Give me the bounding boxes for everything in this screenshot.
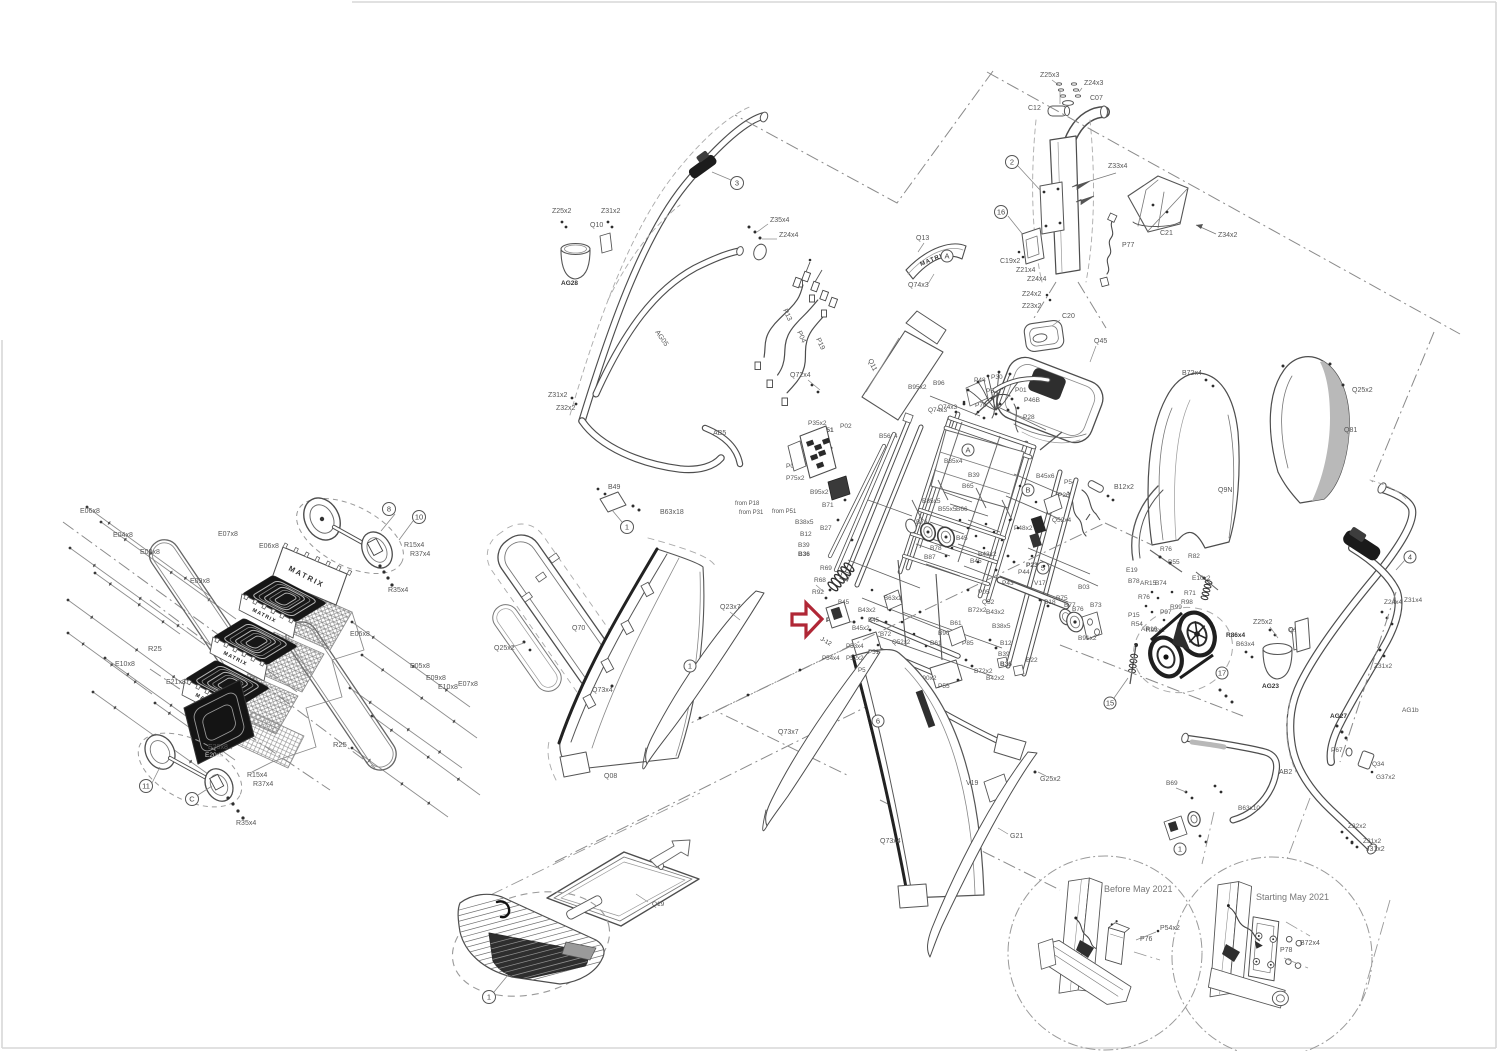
svg-text:Q52x2: Q52x2 (892, 639, 911, 646)
svg-text:Z31x2: Z31x2 (1374, 663, 1392, 670)
svg-text:Z23x2: Z23x2 (1022, 303, 1042, 310)
svg-text:Z31x2: Z31x2 (548, 392, 568, 399)
svg-text:R15x4: R15x4 (247, 772, 267, 779)
svg-text:B87: B87 (924, 554, 936, 561)
svg-text:P30: P30 (991, 374, 1003, 381)
svg-text:R37x4: R37x4 (410, 551, 430, 558)
svg-text:Z33x4: Z33x4 (1108, 163, 1128, 170)
svg-text:Q25x2: Q25x2 (1352, 387, 1373, 394)
svg-text:Z21x4: Z21x4 (1016, 267, 1036, 274)
svg-text:Z35x4: Z35x4 (770, 217, 790, 224)
svg-text:E08x8: E08x8 (140, 549, 160, 556)
svg-text:P35x2: P35x2 (808, 420, 827, 427)
svg-text:1: 1 (688, 662, 692, 671)
svg-text:B: B (1025, 486, 1030, 495)
svg-text:Z24x4: Z24x4 (1027, 276, 1047, 283)
svg-text:11: 11 (142, 782, 150, 791)
svg-text:R25: R25 (333, 740, 347, 749)
svg-text:P77: P77 (1122, 242, 1135, 249)
svg-text:B65: B65 (962, 483, 974, 490)
svg-text:J31x2: J31x2 (1366, 846, 1385, 853)
svg-text:P05: P05 (978, 589, 990, 596)
svg-text:10: 10 (415, 513, 423, 522)
svg-text:B91x2: B91x2 (1078, 635, 1097, 642)
svg-text:Z25x2: Z25x2 (552, 208, 572, 215)
svg-text:V19: V19 (966, 780, 979, 787)
svg-text:P52x2: P52x2 (846, 655, 864, 662)
svg-text:8: 8 (387, 505, 391, 514)
svg-text:AG1b: AG1b (1402, 707, 1419, 714)
svg-text:E06x8: E06x8 (259, 543, 279, 550)
svg-text:R71: R71 (1184, 590, 1196, 597)
svg-text:Q73x4: Q73x4 (592, 687, 613, 694)
svg-text:E10x8: E10x8 (438, 684, 458, 691)
svg-text:Z31x2: Z31x2 (1363, 838, 1381, 845)
svg-text:R86x4: R86x4 (1226, 632, 1246, 639)
svg-text:P23: P23 (1026, 562, 1038, 569)
svg-text:P15: P15 (1128, 612, 1140, 619)
svg-text:B43x2: B43x2 (978, 551, 997, 558)
svg-text:AG23: AG23 (1262, 683, 1279, 690)
svg-text:B27: B27 (820, 525, 832, 532)
svg-text:B12: B12 (800, 531, 812, 538)
svg-text:C: C (189, 795, 195, 804)
svg-text:B69: B69 (1166, 780, 1178, 787)
svg-text:E04x8: E04x8 (113, 532, 133, 539)
svg-text:P5: P5 (858, 667, 866, 674)
svg-text:C21: C21 (1160, 230, 1173, 237)
svg-text:B43x2: B43x2 (986, 609, 1005, 616)
svg-text:B76: B76 (1072, 606, 1084, 613)
svg-text:Q70: Q70 (572, 625, 585, 632)
svg-text:B95x2: B95x2 (908, 384, 927, 391)
svg-text:E10x8: E10x8 (115, 661, 135, 668)
svg-text:R15x4: R15x4 (404, 542, 424, 549)
svg-text:Q72x4: Q72x4 (790, 372, 811, 379)
svg-text:C19x2: C19x2 (1000, 258, 1020, 265)
svg-text:B63x10: B63x10 (1238, 805, 1260, 812)
svg-text:P97: P97 (1160, 609, 1172, 616)
svg-text:Before May 2021: Before May 2021 (1104, 884, 1173, 894)
svg-text:E21x8: E21x8 (166, 679, 186, 686)
svg-text:Z24x3: Z24x3 (1084, 80, 1104, 87)
svg-text:P67: P67 (1331, 747, 1343, 754)
svg-text:R25: R25 (148, 644, 162, 653)
svg-text:B36: B36 (1000, 661, 1012, 668)
svg-text:B38x5: B38x5 (992, 623, 1011, 630)
svg-text:Z34x2: Z34x2 (1218, 232, 1238, 239)
svg-text:B75: B75 (1056, 595, 1068, 602)
svg-text:Z32x2: Z32x2 (1348, 823, 1366, 830)
svg-text:Q81: Q81 (1344, 427, 1357, 434)
svg-text:R35x4: R35x4 (236, 820, 256, 827)
svg-text:Q25x2: Q25x2 (494, 645, 515, 652)
svg-text:R35x4: R35x4 (388, 587, 408, 594)
svg-text:B12x2: B12x2 (1114, 484, 1134, 491)
svg-text:Q52x4: Q52x4 (1052, 517, 1072, 524)
svg-text:AB2: AB2 (1279, 769, 1292, 776)
svg-text:B95x2: B95x2 (810, 489, 829, 496)
svg-text:Z32x2: Z32x2 (556, 405, 576, 412)
svg-text:P53x4: P53x4 (846, 643, 864, 650)
svg-text:B96: B96 (933, 380, 945, 387)
svg-text:Q45: Q45 (1094, 338, 1107, 345)
svg-text:16: 16 (997, 208, 1005, 217)
svg-text:B39: B39 (798, 542, 810, 549)
svg-text:Q34: Q34 (1372, 761, 1385, 768)
svg-text:R68: R68 (814, 577, 826, 584)
svg-text:R76: R76 (1160, 546, 1172, 553)
svg-text:3: 3 (735, 179, 739, 188)
svg-text:Q08: Q08 (604, 773, 617, 780)
svg-text:B43x2: B43x2 (858, 607, 876, 614)
svg-text:B36: B36 (798, 551, 810, 558)
svg-text:Z25x2: Z25x2 (1253, 619, 1273, 626)
svg-text:B73: B73 (1090, 602, 1102, 609)
svg-text:C07: C07 (1090, 95, 1103, 102)
svg-text:B45: B45 (956, 535, 968, 542)
svg-text:R69: R69 (820, 565, 832, 572)
svg-text:P54x4: P54x4 (822, 655, 840, 662)
svg-text:1: 1 (487, 993, 491, 1002)
svg-text:4: 4 (1408, 553, 1412, 562)
svg-text:B78: B78 (930, 545, 942, 552)
svg-text:B18: B18 (1044, 599, 1056, 606)
svg-text:B22: B22 (1026, 657, 1038, 664)
svg-text:G21: G21 (1010, 833, 1023, 840)
svg-text:B49: B49 (608, 484, 621, 491)
svg-text:B85x4: B85x4 (944, 458, 963, 465)
svg-text:G25x2: G25x2 (1040, 776, 1061, 783)
svg-text:E20x8: E20x8 (208, 744, 228, 751)
svg-text:from P18: from P18 (735, 501, 760, 507)
svg-text:B72: B72 (880, 631, 892, 638)
svg-text:P44: P44 (1018, 569, 1030, 576)
svg-text:2: 2 (1010, 158, 1014, 167)
svg-text:Q74x3: Q74x3 (908, 282, 929, 289)
svg-text:E06x8: E06x8 (80, 508, 100, 515)
svg-text:P46B: P46B (1024, 397, 1040, 404)
svg-text:B72x4: B72x4 (1300, 940, 1320, 947)
svg-text:P51: P51 (868, 649, 880, 656)
svg-text:B55x5: B55x5 (938, 506, 957, 513)
svg-text:AG27: AG27 (1330, 713, 1347, 720)
svg-text:from P51: from P51 (772, 509, 797, 515)
svg-text:A: A (965, 446, 970, 455)
svg-text:P78: P78 (1280, 947, 1293, 954)
svg-text:B12: B12 (1000, 640, 1012, 647)
svg-text:Z31x2: Z31x2 (601, 208, 621, 215)
svg-text:from P31: from P31 (739, 510, 764, 516)
svg-text:C20: C20 (1062, 313, 1075, 320)
svg-text:E19: E19 (1126, 567, 1138, 574)
svg-text:E05x8: E05x8 (410, 663, 430, 670)
svg-text:P43: P43 (1002, 580, 1014, 587)
svg-text:R76: R76 (1138, 594, 1150, 601)
svg-text:B45: B45 (868, 617, 880, 624)
svg-text:P75x2: P75x2 (786, 475, 805, 482)
svg-text:Z24x4: Z24x4 (779, 232, 799, 239)
svg-text:1: 1 (1178, 845, 1182, 854)
svg-text:B74: B74 (1155, 580, 1167, 587)
svg-text:E20x8: E20x8 (205, 752, 224, 759)
svg-text:Q52: Q52 (982, 599, 995, 606)
svg-text:Q73x7: Q73x7 (778, 729, 799, 736)
svg-text:B63x2: B63x2 (884, 595, 902, 602)
svg-text:Q13: Q13 (916, 235, 929, 242)
svg-text:B39: B39 (998, 651, 1010, 658)
svg-text:B45: B45 (970, 558, 982, 565)
svg-text:R82: R82 (1188, 553, 1200, 560)
svg-text:Q73x4: Q73x4 (880, 838, 901, 845)
svg-text:B03: B03 (1078, 584, 1090, 591)
svg-text:B71: B71 (822, 502, 834, 509)
svg-text:B55: B55 (1168, 559, 1180, 566)
svg-text:Z31x4: Z31x4 (1404, 597, 1422, 604)
svg-text:Q9N: Q9N (1218, 487, 1232, 494)
svg-text:B66: B66 (956, 506, 968, 513)
svg-text:B39: B39 (968, 472, 980, 479)
svg-text:P55: P55 (938, 683, 950, 690)
svg-text:B45x6: B45x6 (1036, 473, 1055, 480)
svg-text:E10x2: E10x2 (1192, 575, 1211, 582)
svg-text:Z24x2: Z24x2 (1022, 291, 1042, 298)
svg-text:A: A (944, 252, 949, 261)
svg-text:17: 17 (1218, 669, 1226, 678)
svg-text:B63x4: B63x4 (1236, 641, 1255, 648)
svg-text:E07x8: E07x8 (218, 531, 238, 538)
svg-text:B72x4: B72x4 (1182, 370, 1202, 377)
svg-text:C12: C12 (1028, 105, 1041, 112)
svg-text:B45x2: B45x2 (852, 625, 870, 632)
svg-text:B38x5: B38x5 (795, 519, 814, 526)
svg-text:G37x2: G37x2 (1376, 774, 1396, 781)
svg-text:B42x2: B42x2 (986, 675, 1005, 682)
svg-text:B85x5: B85x5 (922, 498, 941, 505)
svg-text:P01: P01 (1015, 387, 1027, 394)
svg-text:B61: B61 (930, 640, 942, 647)
svg-text:AG28: AG28 (561, 280, 578, 287)
svg-text:AB5: AB5 (713, 430, 726, 437)
svg-text:P76: P76 (1140, 936, 1153, 943)
svg-text:15: 15 (1106, 699, 1114, 708)
svg-text:P02: P02 (840, 423, 852, 430)
svg-text:Q23x7: Q23x7 (720, 604, 741, 611)
svg-text:6: 6 (876, 717, 880, 726)
svg-text:Q74x3: Q74x3 (928, 407, 948, 414)
svg-text:Q10: Q10 (590, 222, 603, 229)
svg-text:E07x8: E07x8 (458, 681, 478, 688)
svg-text:E09x8: E09x8 (426, 675, 446, 682)
svg-text:B78: B78 (1128, 578, 1140, 585)
svg-text:B63x18: B63x18 (660, 509, 684, 516)
svg-text:E09x8: E09x8 (190, 578, 210, 585)
svg-text:B72x2: B72x2 (968, 607, 987, 614)
svg-text:Q19: Q19 (652, 901, 665, 908)
svg-text:Starting May 2021: Starting May 2021 (1256, 892, 1329, 902)
svg-text:R92: R92 (812, 589, 824, 596)
svg-text:R98: R98 (1181, 599, 1193, 606)
svg-text:1: 1 (625, 523, 629, 532)
svg-text:B72x2: B72x2 (974, 668, 993, 675)
svg-text:R37x4: R37x4 (253, 781, 273, 788)
svg-text:Z25x3: Z25x3 (1040, 72, 1060, 79)
svg-text:E06x8: E06x8 (350, 631, 370, 638)
svg-text:B61: B61 (950, 620, 962, 627)
svg-text:V17: V17 (1034, 580, 1046, 587)
